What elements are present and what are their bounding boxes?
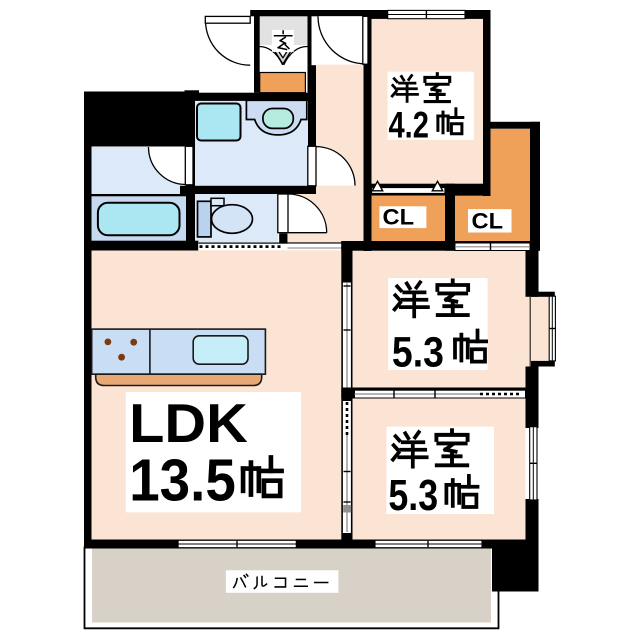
svg-text:CL: CL: [472, 209, 504, 234]
svg-text:LDK: LDK: [129, 393, 248, 454]
svg-text:CL: CL: [383, 204, 415, 229]
svg-text:5.3: 5.3: [392, 328, 444, 376]
svg-text:4.2: 4.2: [389, 104, 429, 145]
svg-text:5.3: 5.3: [388, 472, 438, 520]
svg-text:13.5: 13.5: [129, 447, 236, 513]
